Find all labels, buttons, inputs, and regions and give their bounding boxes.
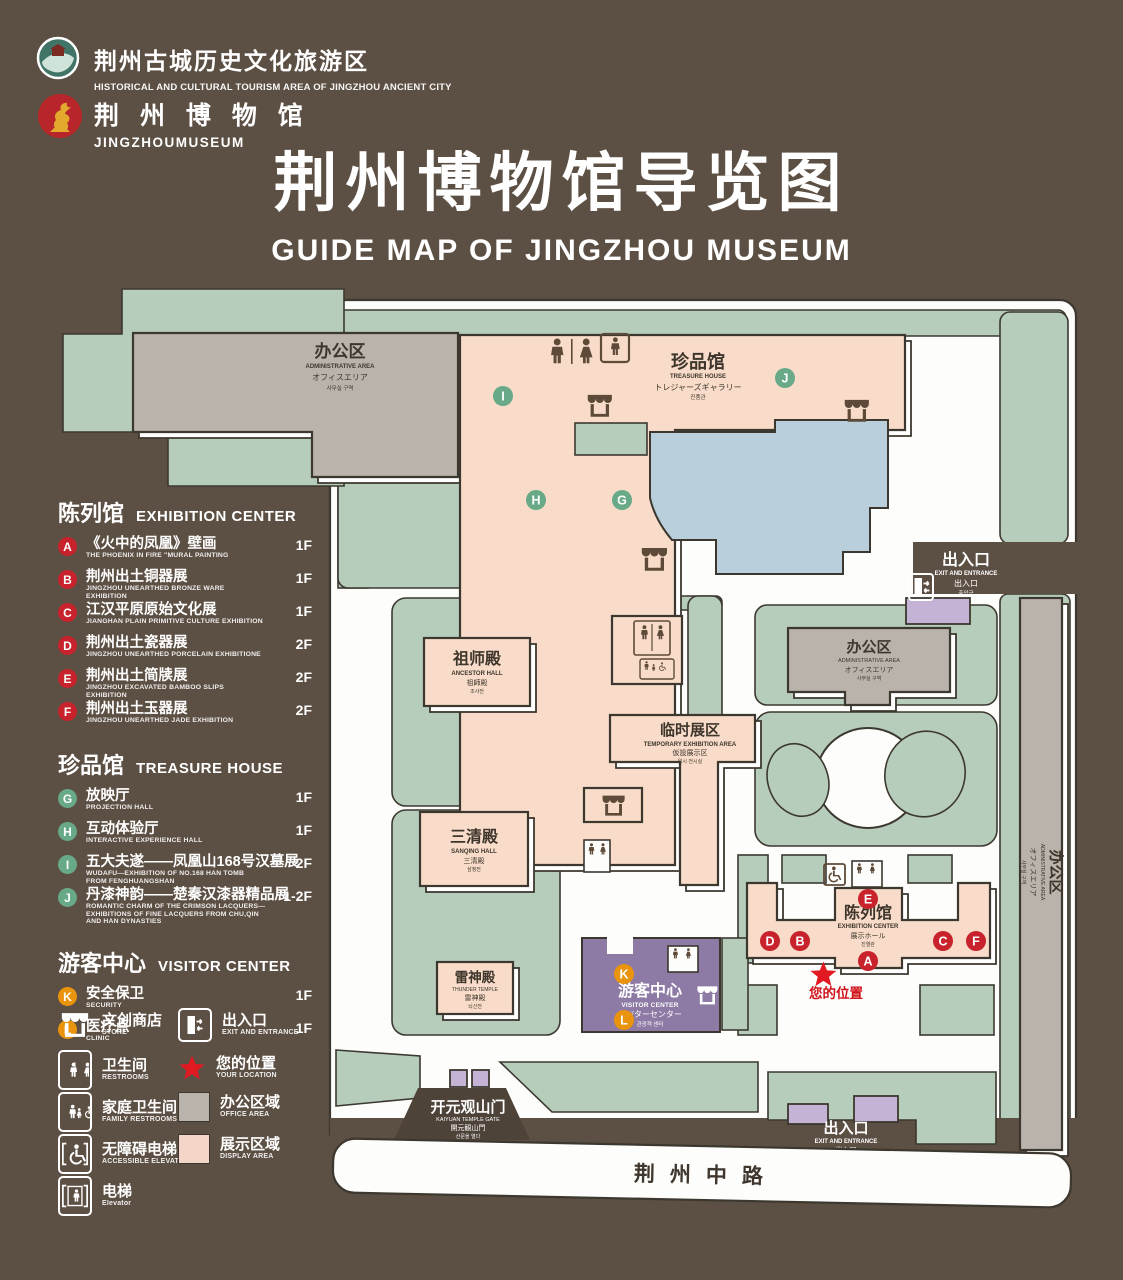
ancestor-label-jp: 祖師殿 xyxy=(467,678,488,687)
svg-text:K: K xyxy=(619,968,628,982)
legend-exit: 出入口EXIT AND ENTRANCE xyxy=(178,1008,299,1042)
legend-office-area: 办公区域OFFICE AREA xyxy=(178,1092,280,1122)
floor-label: 1F xyxy=(296,822,312,838)
office-area-swatch xyxy=(178,1092,210,1122)
admin-east-label-kr: 사무실 구역 xyxy=(857,675,881,682)
exit-top-label-kr: 출입구 xyxy=(958,589,973,597)
exit-top-label-cn: 出入口 xyxy=(942,550,990,569)
section-title-en: VISITOR CENTER xyxy=(158,958,291,975)
legend-item-e: E 荆州出土简牍展JINGZHOU EXCAVATED BAMBOO SLIPS… xyxy=(58,668,312,701)
legend-item-a: A 《火中的凤凰》壁画THE PHOENIX IN FIRE "MURAL PA… xyxy=(58,536,312,569)
svg-text:D: D xyxy=(765,935,774,949)
floor-label: 1F xyxy=(296,570,312,586)
legend-family-restroom: 家庭卫生间FAMILY RESTROOMS xyxy=(58,1092,177,1132)
treasure-terrace xyxy=(575,423,647,455)
section-title-cn: 游客中心 xyxy=(58,946,146,978)
badge-a: A xyxy=(58,537,77,556)
svg-text:A: A xyxy=(863,955,872,969)
section-title-cn: 珍品馆 xyxy=(58,748,124,780)
thunder-label-en: THUNDER TEMPLE xyxy=(452,987,498,993)
building-restroom-pavilion xyxy=(612,616,682,684)
tourism-area-name-en: HISTORICAL AND CULTURAL TOURISM AREA OF … xyxy=(94,82,452,93)
badge-b: B xyxy=(58,570,77,589)
marker-e: E xyxy=(858,889,878,909)
your-location-star-icon xyxy=(178,1054,206,1082)
gate-label-cn: 开元观山门 xyxy=(430,1098,505,1116)
visitor-notch xyxy=(607,934,633,954)
admin-east-label-cn: 办公区 xyxy=(846,638,891,656)
gate-label-jp: 開元観山門 xyxy=(451,1123,486,1132)
floor-label: 1-2F xyxy=(283,888,312,904)
legend-section-visitor-center: 游客中心 VISITOR CENTER xyxy=(58,946,312,978)
visitor-label-en: VISITOR CENTER xyxy=(621,1002,678,1009)
marker-g: G xyxy=(612,490,632,510)
floor-label: 1F xyxy=(296,987,312,1003)
restroom-icon xyxy=(61,1055,89,1085)
legend-section-treasure-house: 珍品馆 TREASURE HOUSE xyxy=(58,748,312,780)
admin-strip-label-jp: オフィスエリア xyxy=(1029,848,1037,897)
badge-c: C xyxy=(58,603,77,622)
your-location-label: 您的位置 xyxy=(809,985,863,1001)
legend-item-g: G 放映厅PROJECTION HALL 1F xyxy=(58,788,312,821)
svg-text:B: B xyxy=(795,935,804,949)
legend-item-f: F 荆州出土玉器展JINGZHOU UNEARTHED JADE EXHIBIT… xyxy=(58,701,312,734)
gate-label-en: KAIYUAN TEMPLE GATE xyxy=(436,1117,500,1123)
treasure-label-en: TREASURE HOUSE xyxy=(670,374,726,380)
marker-j: J xyxy=(775,368,795,388)
display-area-swatch xyxy=(178,1134,210,1164)
badge-g: G xyxy=(58,789,77,808)
legend-display-area: 展示区域DISPLAY AREA xyxy=(178,1134,280,1164)
marker-c: C xyxy=(933,931,953,951)
admin-east-label-jp: オフィスエリア xyxy=(845,666,894,674)
temporary-label-cn: 临时展区 xyxy=(660,721,720,739)
store-icon xyxy=(58,1010,92,1040)
svg-text:J: J xyxy=(782,372,789,386)
legend-store: 文创商店STORE xyxy=(58,1010,162,1040)
section-title-en: TREASURE HOUSE xyxy=(136,760,283,777)
legend-your-location: 您的位置YOUR LOCATION xyxy=(178,1054,277,1082)
building-admin-strip: 办公区 ADMINISTRATIVE AREA オフィスエリア 사무실 구역 xyxy=(1020,598,1068,1156)
gate-label-kr: 산문을 열다 xyxy=(456,1133,481,1140)
badge-e: E xyxy=(58,669,77,688)
exit-bottom-label-en: EXIT AND ENTRANCE xyxy=(815,1139,878,1145)
temporary-label-jp: 仮設展示区 xyxy=(673,748,708,757)
marker-f: F xyxy=(966,931,986,951)
admin-nw-label-jp: オフィスエリア xyxy=(312,373,368,382)
section-title-en: EXHIBITION CENTER xyxy=(136,508,296,525)
admin-nw-label-cn: 办公区 xyxy=(315,341,366,361)
accessible-elevator-icon xyxy=(62,1140,88,1168)
legend-item-j: J 丹漆神韵——楚秦汉漆器精品展ROMANTIC CHARM OF THE CR… xyxy=(58,887,312,934)
svg-text:E: E xyxy=(864,893,872,907)
legend-restroom: 卫生间RESTROOMS xyxy=(58,1050,149,1090)
svg-text:F: F xyxy=(972,935,980,949)
floor-label: 2F xyxy=(296,855,312,871)
sanqing-label-en: SANQING HALL xyxy=(451,849,497,855)
building-sanqing-hall: 三清殿 SANQING HALL 三清殿 삼청전 xyxy=(420,812,534,892)
legend-accessible-elevator: 无障碍电梯ACCESSIBLE ELEVATOR xyxy=(58,1134,190,1174)
visitor-label-kr: 관광객 센터 xyxy=(637,1020,664,1028)
road-label: 荆州中路 xyxy=(634,1162,778,1189)
temporary-label-en: TEMPORARY EXHIBITION AREA xyxy=(644,742,737,748)
exit-top-label-jp: 出入口 xyxy=(954,578,978,588)
tourism-area-wordmark: 荆州古城历史文化旅游区 HISTORICAL AND CULTURAL TOUR… xyxy=(94,42,452,93)
legend-elevator: 电梯Elevator xyxy=(58,1176,132,1216)
marker-i: I xyxy=(493,386,513,406)
thunder-label-kr: 뇌신전 xyxy=(468,1003,482,1010)
badge-d: D xyxy=(58,636,77,655)
marker-l: L xyxy=(614,1010,634,1030)
elevator-icon xyxy=(62,1182,88,1210)
exhibition-label-kr: 진열관 xyxy=(861,941,875,948)
title-cn: 荆州博物馆导览图 xyxy=(0,132,1123,224)
ancestor-label-en: ANCESTOR HALL xyxy=(451,671,503,677)
legend-item-i: I 五大夫遂——凤凰山168号汉墓展WUDAFU—EXHIBITION OF N… xyxy=(58,854,312,887)
thunder-label-cn: 雷神殿 xyxy=(455,969,496,985)
tourism-area-logo xyxy=(36,36,80,80)
svg-text:H: H xyxy=(531,494,540,508)
marker-b: B xyxy=(790,931,810,951)
legend-item-c: C 江汉平原原始文化展JIANGHAN PLAIN PRIMITIVE CULT… xyxy=(58,602,312,635)
temporary-label-kr: 임시 전시실 xyxy=(678,758,703,765)
thunder-label-jp: 雷神殿 xyxy=(465,993,486,1002)
entrance-structure xyxy=(906,598,970,624)
exhibition-label-jp: 展示ホール xyxy=(851,932,886,940)
page-title: 荆州博物馆导览图 GUIDE MAP OF JINGZHOU MUSEUM xyxy=(0,132,1123,268)
title-en: GUIDE MAP OF JINGZHOU MUSEUM xyxy=(0,234,1123,268)
floor-label: 1F xyxy=(296,537,312,553)
building-ancestor-hall: 祖师殿 ANCESTOR HALL 祖師殿 조사전 xyxy=(424,638,536,712)
floor-label: 2F xyxy=(296,702,312,718)
legend-item-h: H 互动体验厅INTERACTIVE EXPERIENCE HALL 1F xyxy=(58,821,312,854)
legend-section-exhibition-center: 陈列馆 EXHIBITION CENTER xyxy=(58,496,312,528)
marker-k: K xyxy=(614,964,634,984)
floor-label: 2F xyxy=(296,669,312,685)
marker-d: D xyxy=(760,931,780,951)
badge-i: I xyxy=(58,855,77,874)
tourism-area-name-cn: 荆州古城历史文化旅游区 xyxy=(94,42,452,76)
building-visitor-center: 游客中心 VISITOR CENTER ビジターセンター 관광객 센터 xyxy=(582,934,720,1032)
admin-strip-label-kr: 사무실 구역 xyxy=(1020,860,1027,884)
restroom-icon xyxy=(668,946,698,972)
building-admin-east: 办公区 ADMINISTRATIVE AREA オフィスエリア 사무실 구역 xyxy=(788,628,956,711)
admin-nw-label-en: ADMINISTRATIVE AREA xyxy=(306,364,376,370)
badge-h: H xyxy=(58,822,77,841)
visitor-label-cn: 游客中心 xyxy=(618,981,682,1000)
treasure-label-jp: トレジャーズギャラリー xyxy=(654,382,741,392)
marker-a: A xyxy=(858,951,878,971)
badge-j: J xyxy=(58,888,77,907)
floor-label: 1F xyxy=(296,789,312,805)
sanqing-label-cn: 三清殿 xyxy=(450,828,499,846)
exit-top-label-en: EXIT AND ENTRANCE xyxy=(935,571,998,577)
exhibition-label-en: EXHIBITION CENTER xyxy=(838,924,899,930)
floor-label: 1F xyxy=(296,603,312,619)
treasure-label-kr: 진품관 xyxy=(690,393,705,401)
treasure-label-cn: 珍品馆 xyxy=(671,351,725,372)
restroom-icon xyxy=(852,861,882,887)
badge-f: F xyxy=(58,702,77,721)
ancestor-label-cn: 祖师殿 xyxy=(452,649,502,668)
building-thunder-temple: 雷神殿 THUNDER TEMPLE 雷神殿 뇌신전 xyxy=(437,962,519,1020)
svg-text:C: C xyxy=(938,935,947,949)
family-restroom-icon xyxy=(60,1097,90,1127)
museum-name-cn: 荆 州 博 物 馆 xyxy=(94,96,310,132)
legend-item-d: D 荆州出土瓷器展JINGZHOU UNEARTHED PORCELAIN EX… xyxy=(58,635,312,668)
marker-h: H xyxy=(526,490,546,510)
guide-map-poster: { "colors": { "background": "#5c4f43", "… xyxy=(0,0,1123,1280)
admin-strip-label-cn: 办公区 xyxy=(1047,849,1065,894)
ancestor-label-kr: 조사전 xyxy=(470,688,484,695)
floor-label: 2F xyxy=(296,636,312,652)
top-exit-gap xyxy=(913,542,1078,594)
section-title-cn: 陈列馆 xyxy=(58,496,124,528)
admin-nw-label-kr: 사무실 구역 xyxy=(327,384,354,392)
admin-east-label-en: ADMINISTRATIVE AREA xyxy=(838,658,900,664)
svg-text:I: I xyxy=(501,390,504,404)
svg-text:L: L xyxy=(620,1014,628,1028)
sanqing-label-kr: 삼청전 xyxy=(467,866,481,873)
svg-text:G: G xyxy=(617,494,627,508)
legend-panel: 陈列馆 EXHIBITION CENTER A 《火中的凤凰》壁画THE PHO… xyxy=(58,496,312,1052)
exit-bottom-label-cn: 出入口 xyxy=(823,1119,868,1137)
restroom-icon xyxy=(584,840,610,872)
admin-strip-label-en: ADMINISTRATIVE AREA xyxy=(1039,844,1045,901)
legend-item-b: B 荆州出土铜器展JINGZHOU UNEARTHED BRONZE WARE … xyxy=(58,569,312,602)
sanqing-label-jp: 三清殿 xyxy=(464,856,485,865)
badge-k: K xyxy=(58,987,77,1006)
exit-door-icon xyxy=(183,1013,207,1037)
